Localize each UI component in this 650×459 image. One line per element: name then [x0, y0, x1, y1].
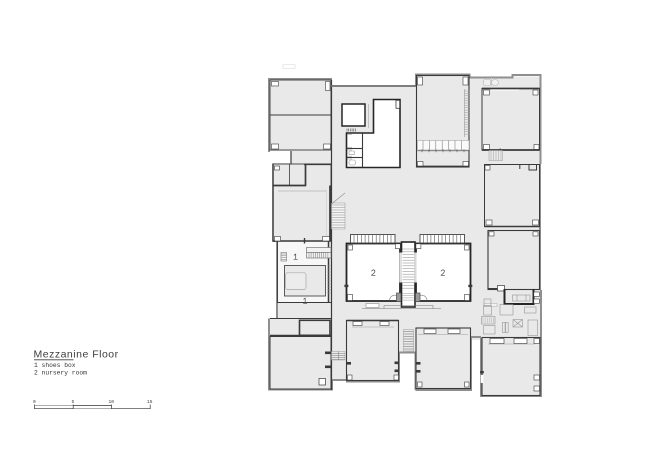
svg-text:15: 15: [147, 399, 153, 405]
svg-text:5: 5: [72, 399, 75, 405]
svg-text:1 shoes box: 1 shoes box: [34, 362, 76, 369]
svg-text:Mezzanine Floor: Mezzanine Floor: [34, 349, 119, 361]
svg-text:0: 0: [33, 399, 36, 405]
svg-text:10: 10: [109, 399, 115, 405]
svg-text:2 nursery room: 2 nursery room: [34, 369, 87, 376]
